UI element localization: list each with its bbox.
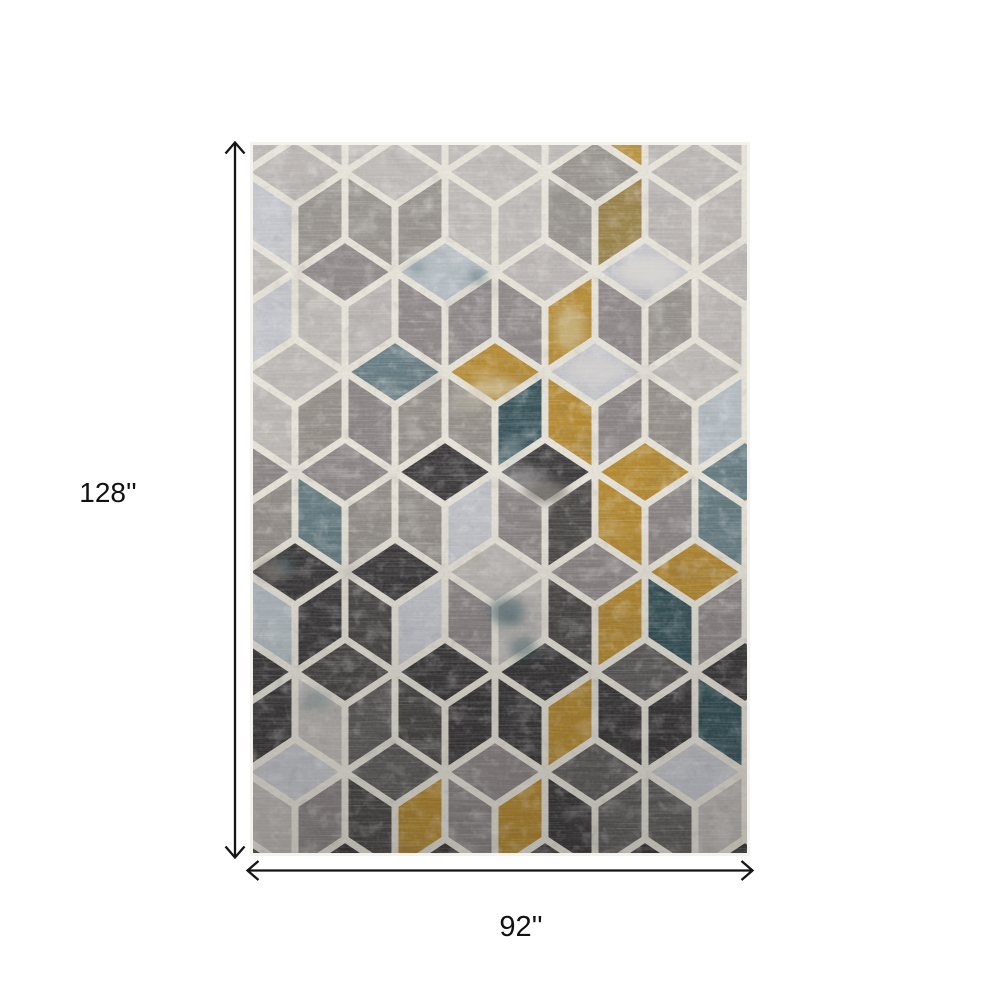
svg-text:92'': 92'' xyxy=(499,911,542,943)
svg-text:128'': 128'' xyxy=(79,477,136,508)
